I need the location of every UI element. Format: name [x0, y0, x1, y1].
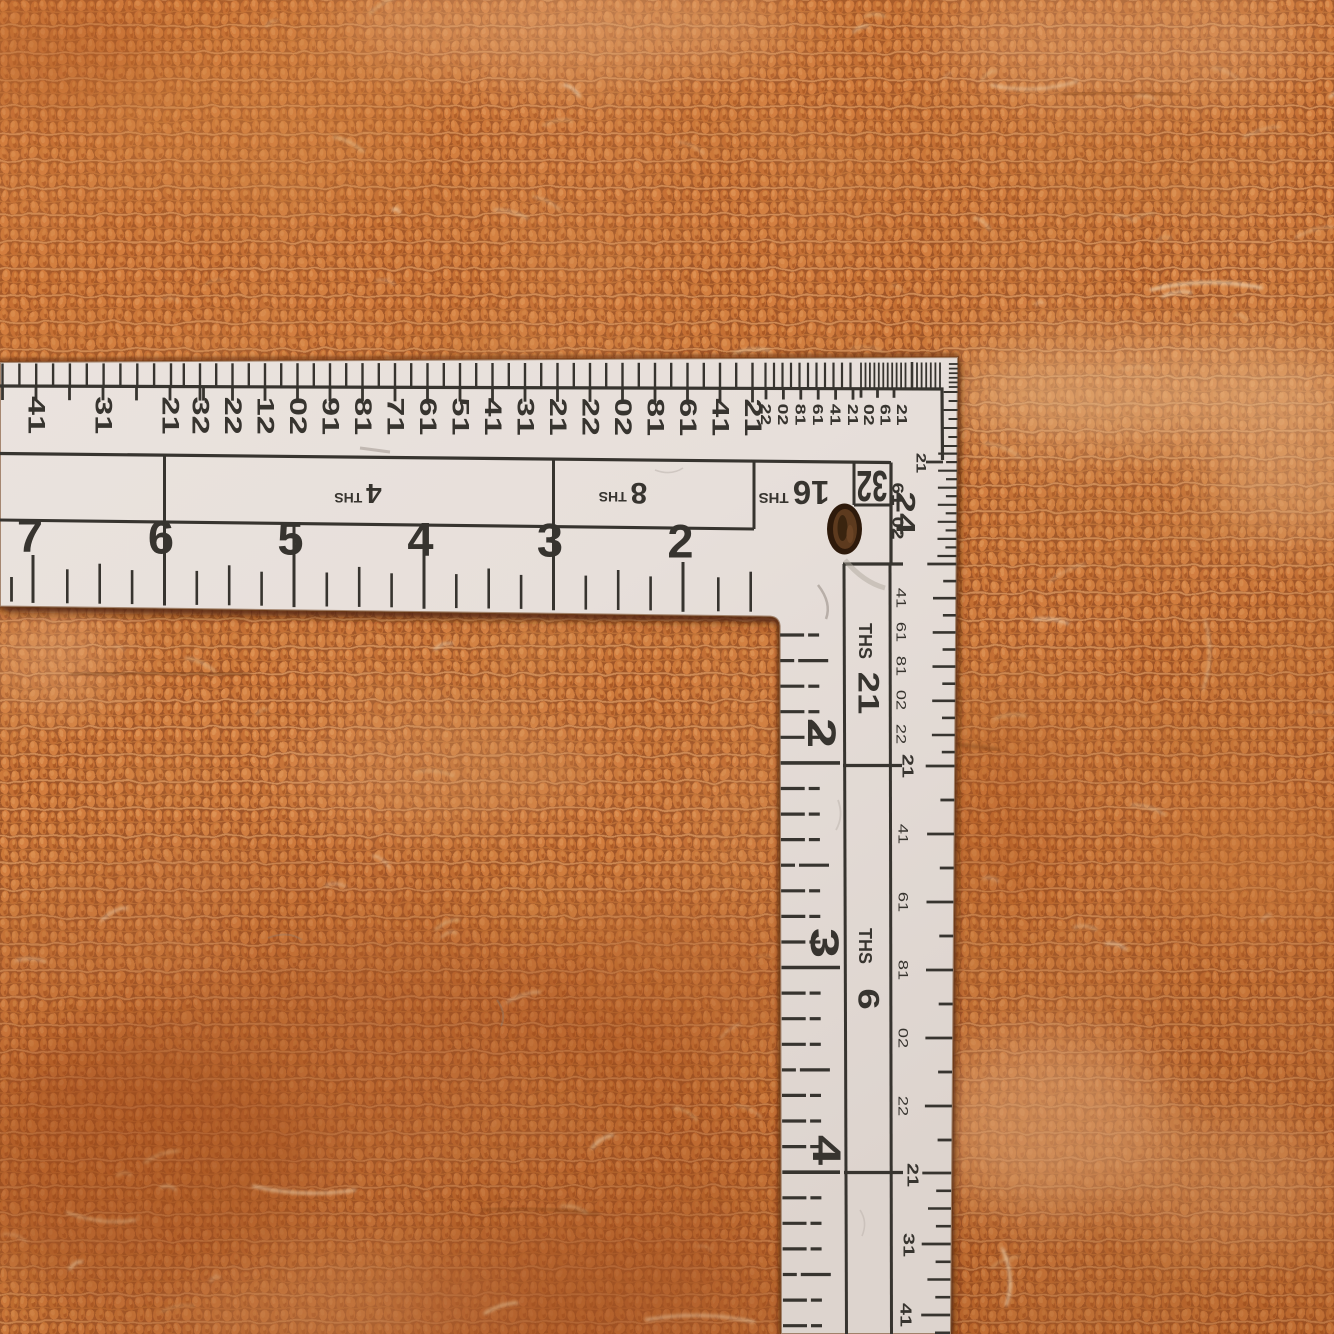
svg-text:5: 5	[277, 511, 303, 564]
svg-text:61: 61	[877, 404, 894, 426]
svg-text:12: 12	[252, 397, 279, 435]
svg-text:02: 02	[860, 404, 877, 426]
svg-text:02: 02	[893, 690, 909, 710]
svg-text:61: 61	[889, 482, 907, 505]
svg-text:61: 61	[895, 892, 911, 912]
svg-text:61: 61	[414, 397, 441, 435]
svg-text:81: 81	[642, 398, 669, 436]
svg-text:32: 32	[856, 462, 887, 511]
svg-text:6: 6	[148, 510, 174, 563]
svg-text:41: 41	[479, 398, 506, 436]
svg-text:22: 22	[577, 398, 604, 436]
svg-text:21: 21	[913, 453, 929, 473]
svg-text:22: 22	[893, 724, 909, 744]
svg-text:41: 41	[893, 588, 909, 608]
svg-text:61: 61	[674, 398, 701, 436]
svg-text:21: 21	[157, 397, 184, 435]
svg-text:41: 41	[896, 1303, 914, 1328]
svg-text:81: 81	[349, 397, 376, 435]
svg-text:2: 2	[667, 515, 693, 568]
svg-text:22: 22	[757, 404, 774, 426]
svg-text:91: 91	[317, 397, 344, 435]
svg-text:7: 7	[17, 509, 43, 562]
svg-text:4: 4	[407, 512, 433, 565]
svg-text:21: 21	[903, 1163, 921, 1188]
svg-text:71: 71	[382, 397, 409, 435]
svg-text:81: 81	[792, 404, 809, 426]
svg-text:41: 41	[827, 404, 844, 426]
svg-text:22: 22	[895, 1096, 911, 1116]
svg-text:61: 61	[810, 404, 827, 426]
svg-text:41: 41	[895, 824, 911, 844]
svg-text:3: 3	[537, 513, 563, 566]
svg-text:4: 4	[804, 1135, 848, 1166]
svg-text:2: 2	[799, 718, 843, 748]
svg-text:51: 51	[447, 398, 474, 436]
svg-text:THS: THS	[855, 928, 875, 964]
svg-text:81: 81	[893, 656, 909, 676]
svg-text:02: 02	[284, 397, 311, 435]
svg-text:02: 02	[889, 516, 907, 539]
svg-text:31: 31	[899, 1233, 917, 1258]
svg-text:21: 21	[851, 672, 884, 715]
svg-text:31: 31	[90, 396, 117, 434]
svg-text:31: 31	[512, 398, 539, 436]
svg-text:3: 3	[802, 928, 846, 958]
svg-text:02: 02	[775, 404, 792, 426]
svg-text:21: 21	[893, 404, 910, 426]
svg-text:THS: THS	[855, 623, 875, 659]
svg-text:02: 02	[609, 398, 636, 436]
svg-text:41: 41	[707, 398, 734, 436]
svg-text:81: 81	[895, 960, 911, 980]
svg-text:6: 6	[851, 988, 884, 1009]
svg-text:22: 22	[219, 397, 246, 435]
svg-text:61: 61	[893, 622, 909, 642]
svg-text:41: 41	[23, 396, 50, 434]
svg-text:21: 21	[844, 404, 861, 426]
svg-text:02: 02	[895, 1028, 911, 1048]
svg-text:32: 32	[187, 397, 214, 435]
svg-text:21: 21	[544, 398, 571, 436]
svg-text:21: 21	[898, 754, 916, 779]
